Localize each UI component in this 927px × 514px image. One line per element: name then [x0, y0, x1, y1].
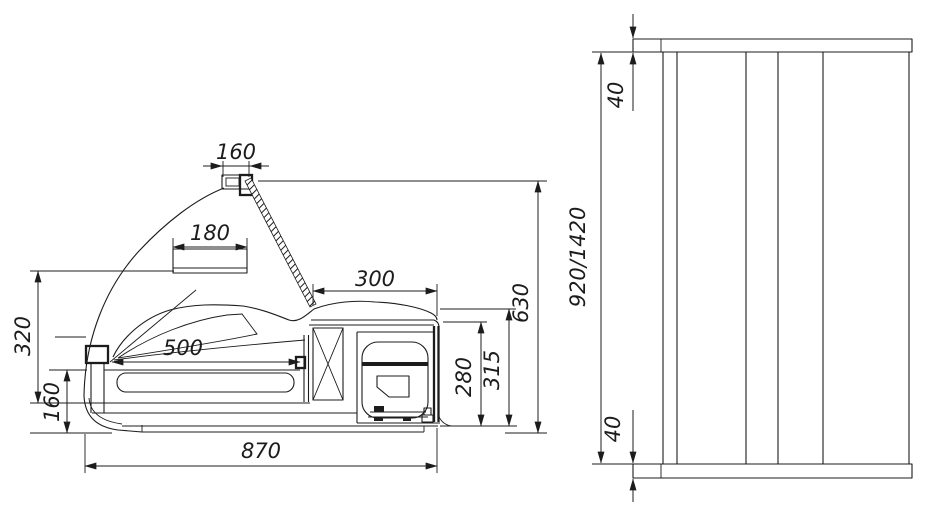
bottom-slab	[633, 464, 912, 478]
dim-top-slab-thickness: 40	[604, 14, 633, 111]
dim-stand-height: 920/1420	[566, 52, 663, 464]
drawing-svg: 160 180 320 160 500 300	[0, 0, 927, 514]
front-glass-curve	[84, 188, 224, 396]
dim-label-machine-compartment-height: 315	[480, 350, 504, 390]
dim-label-machine-compartment-width: 300	[355, 267, 395, 291]
dim-compressor-space-height: 280	[440, 322, 517, 426]
compartment-rear-wall	[434, 326, 439, 422]
dim-overall-height: 630	[258, 181, 547, 433]
dim-label-stand-height: 920/1420	[566, 207, 590, 308]
front-view: 920/1420 40 40	[566, 14, 912, 502]
dim-label-bottom-slab-thickness: 40	[601, 416, 625, 443]
rear-glass-hatched	[245, 178, 316, 307]
dim-front-panel-height: 160	[30, 370, 112, 433]
machine-compartment	[296, 320, 440, 423]
dim-label-overall-depth: 870	[241, 439, 281, 463]
dim-overall-depth: 870	[85, 428, 437, 473]
dim-label-deck-length: 500	[163, 336, 203, 360]
condenser-x-brace	[313, 328, 343, 400]
dim-label-overall-height: 630	[509, 283, 533, 323]
dim-shelf-width: 180	[173, 221, 247, 250]
dim-bottom-slab-thickness: 40	[601, 410, 633, 502]
dim-label-glass-front-height: 320	[11, 316, 35, 356]
compressor	[362, 342, 433, 422]
dim-label-shelf-width: 180	[190, 221, 230, 245]
shelf	[173, 249, 247, 273]
display-tray	[117, 373, 294, 392]
panel-lines	[663, 52, 909, 464]
canopy-outline	[113, 301, 437, 357]
dim-label-compressor-space-height: 280	[452, 357, 476, 397]
dim-label-front-panel-height: 160	[40, 382, 64, 422]
countertop-slab	[633, 39, 912, 52]
base-plinth	[84, 396, 451, 432]
dim-lamp-width: 160	[203, 140, 269, 177]
technical-drawing-canvas: 160 180 320 160 500 300	[0, 0, 927, 514]
dim-label-top-slab-thickness: 40	[604, 82, 628, 109]
side-view: 160 180 320 160 500 300	[11, 140, 547, 473]
dim-label-lamp-width: 160	[216, 140, 256, 164]
